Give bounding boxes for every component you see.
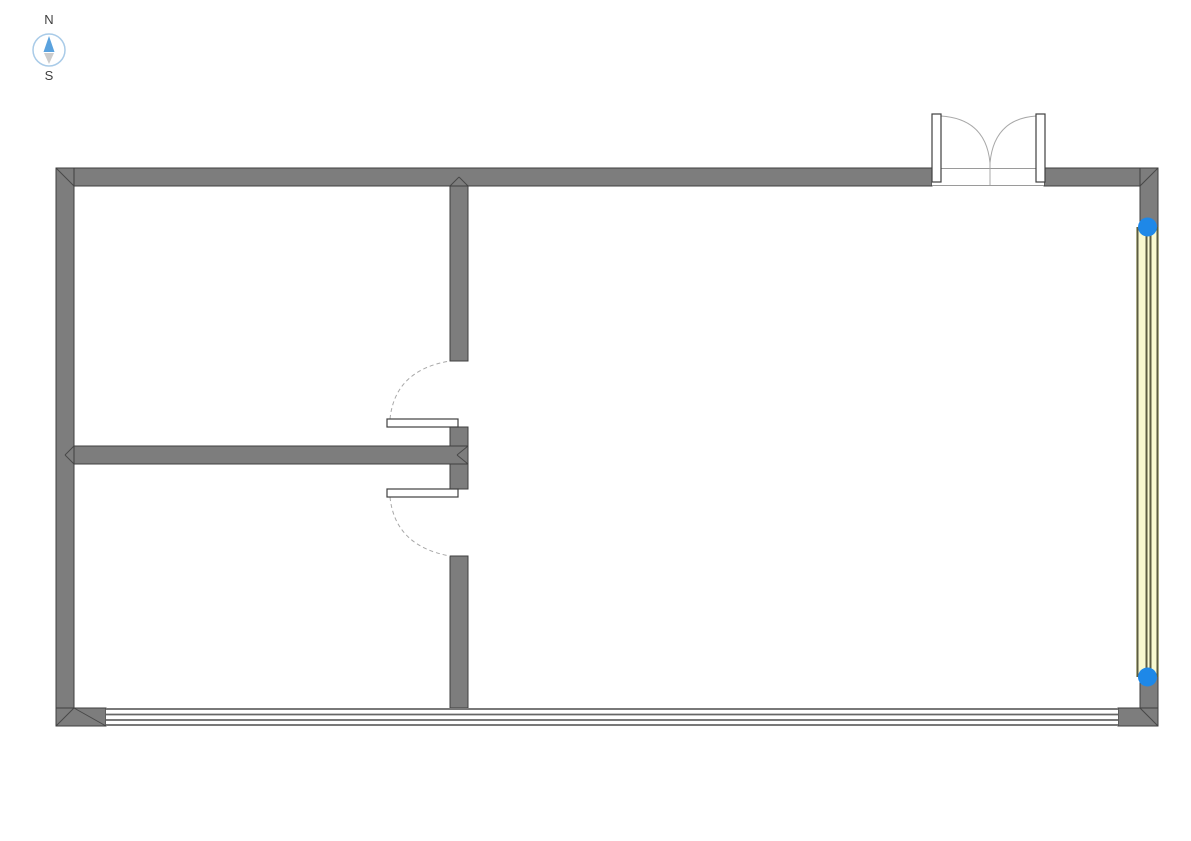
door-swing-arc-right (990, 116, 1036, 163)
interior-door-upper[interactable] (387, 361, 458, 427)
door-leaf-left[interactable] (932, 114, 941, 182)
door-swing-arc-left (941, 116, 990, 163)
right-window-selected[interactable] (1136, 218, 1159, 687)
wall-left[interactable] (56, 168, 74, 726)
wall-interior-vertical-upper[interactable] (450, 186, 468, 361)
floor-plan-canvas: N S (0, 0, 1191, 841)
wall-bottom-right-corner[interactable] (1118, 708, 1158, 726)
double-entry-door[interactable] (932, 114, 1045, 186)
door-leaf-right[interactable] (1036, 114, 1045, 182)
interior-door-lower[interactable] (387, 489, 458, 556)
selection-handle-top[interactable] (1138, 218, 1157, 237)
door-swing-arc (390, 361, 450, 419)
wall-interior-vertical-lower[interactable] (450, 556, 468, 708)
wall-top-left-segment[interactable] (56, 168, 932, 186)
floor-plan (0, 0, 1191, 841)
door-leaf[interactable] (387, 419, 458, 427)
bottom-window-body[interactable] (106, 708, 1118, 726)
wall-bottom-left-corner[interactable] (56, 708, 106, 726)
door-opening[interactable] (932, 168, 1044, 186)
selection-handle-bottom[interactable] (1138, 668, 1157, 687)
interior-walls (74, 186, 468, 708)
door-swing-arc (390, 497, 450, 556)
door-leaf[interactable] (387, 489, 458, 497)
bottom-window[interactable] (106, 708, 1118, 726)
wall-interior-horizontal[interactable] (74, 446, 468, 464)
